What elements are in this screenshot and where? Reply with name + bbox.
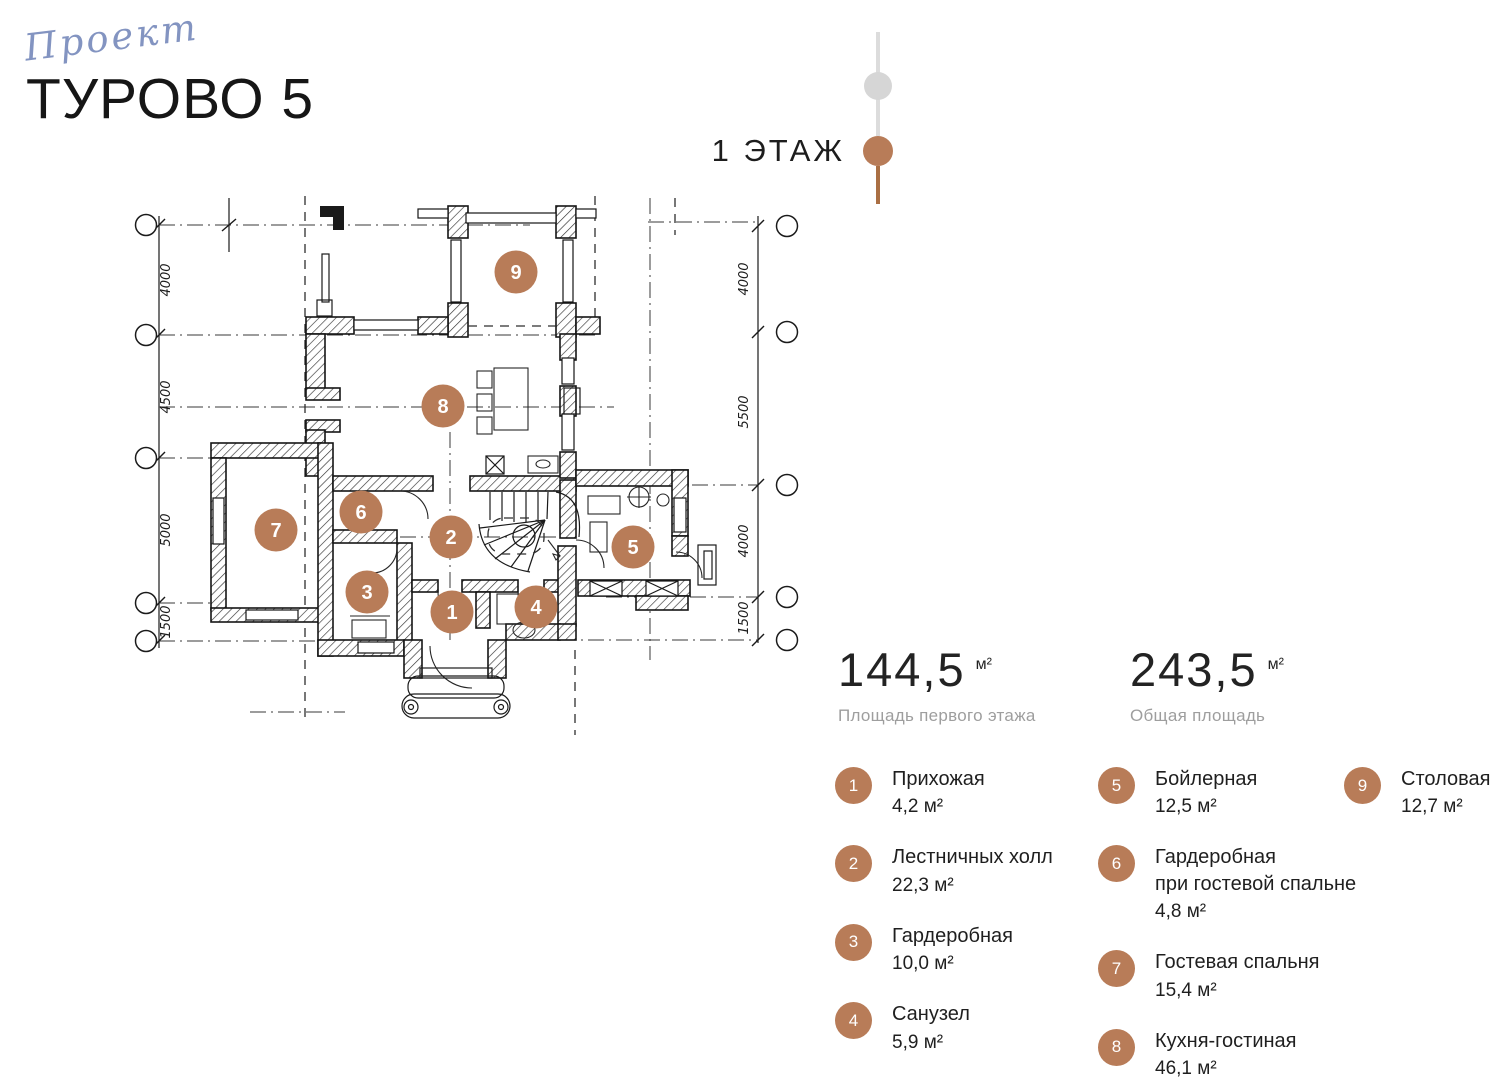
room-number-badge: 9 [1344, 767, 1381, 804]
room-area: 12,5 м² [1155, 796, 1257, 818]
room-name-line: Гардеробная [1155, 844, 1356, 870]
legend-item-8: 8Кухня-гостиная46,1 м² [1098, 1028, 1356, 1080]
first-floor-area-label: Площадь первого этажа [838, 706, 1036, 726]
plan-marker-number: 4 [530, 597, 542, 619]
room-area: 10,0 м² [892, 953, 1013, 975]
floor-plan: 40004500500015004000550040001500 [120, 185, 840, 745]
plan-marker-number: 5 [627, 537, 638, 559]
plan-marker-number: 6 [355, 502, 366, 524]
room-area: 5,9 м² [892, 1032, 970, 1054]
room-number-badge: 2 [835, 845, 872, 882]
legend-item-3: 3Гардеробная10,0 м² [835, 923, 1053, 975]
room-name: Гардеробнаяпри гостевой спальне [1155, 844, 1356, 897]
dimension-label: 1500 [159, 605, 174, 638]
room-area: 22,3 м² [892, 875, 1053, 897]
timeline-dot-floor1-active[interactable] [863, 136, 893, 166]
room-number-badge: 3 [835, 924, 872, 961]
room-name-line: Лестничных холл [892, 844, 1053, 870]
legend-item-5: 5Бойлерная12,5 м² [1098, 766, 1356, 818]
room-name-line: Санузел [892, 1001, 970, 1027]
dimension-label: 4000 [737, 524, 752, 557]
room-name-line: Гостевая спальня [1155, 949, 1320, 975]
total-area-label: Общая площадь [1130, 706, 1284, 726]
legend-item-9: 9Столовая12,7 м² [1344, 766, 1490, 818]
legend-column-3: 9Столовая12,7 м² [1344, 766, 1490, 818]
dimension-grid: 40004500500015004000550040001500 [136, 196, 798, 735]
room-name: Гардеробная [892, 923, 1013, 949]
floor-label: 1 ЭТАЖ [560, 133, 845, 169]
dimension-label: 4500 [159, 380, 174, 413]
legend-column-2: 5Бойлерная12,5 м²6Гардеробнаяпри гостево… [1098, 766, 1356, 1080]
legend-item-2: 2Лестничных холл22,3 м² [835, 844, 1053, 896]
plan-marker-number: 8 [437, 396, 448, 418]
room-area: 15,4 м² [1155, 980, 1320, 1002]
room-number-badge: 4 [835, 1002, 872, 1039]
room-area: 46,1 м² [1155, 1058, 1297, 1080]
room-number-badge: 1 [835, 767, 872, 804]
room-name-line: Гардеробная [892, 923, 1013, 949]
dimension-label: 4000 [737, 262, 752, 295]
room-name: Бойлерная [1155, 766, 1257, 792]
room-number-badge: 5 [1098, 767, 1135, 804]
legend-column-1: 1Прихожая4,2 м²2Лестничных холл22,3 м²3Г… [835, 766, 1053, 1054]
page-title: ТУРОВО 5 [26, 66, 314, 132]
first-floor-area-stat: 144,5м² Площадь первого этажа [838, 642, 1036, 726]
timeline-dot-floor2[interactable] [864, 72, 892, 100]
room-area: 4,2 м² [892, 796, 985, 818]
floor-plan-drawing: 40004500500015004000550040001500 [120, 185, 840, 745]
room-name-line: Кухня-гостиная [1155, 1028, 1297, 1054]
room-number-badge: 6 [1098, 845, 1135, 882]
first-floor-area-value: 144,5 [838, 643, 966, 696]
plan-marker-number: 1 [446, 602, 457, 624]
room-name: Санузел [892, 1001, 970, 1027]
legend-item-7: 7Гостевая спальня15,4 м² [1098, 949, 1356, 1001]
room-name-line: Столовая [1401, 766, 1490, 792]
room-name: Столовая [1401, 766, 1490, 792]
room-name: Гостевая спальня [1155, 949, 1320, 975]
legend-item-6: 6Гардеробнаяпри гостевой спальне4,8 м² [1098, 844, 1356, 923]
dimension-label: 5500 [737, 395, 752, 428]
room-name-line: Прихожая [892, 766, 985, 792]
room-name-line: при гостевой спальне [1155, 871, 1356, 897]
room-name: Лестничных холл [892, 844, 1053, 870]
plan-marker-number: 7 [270, 520, 281, 542]
chimney-mark [320, 206, 344, 230]
room-name: Кухня-гостиная [1155, 1028, 1297, 1054]
room-area: 4,8 м² [1155, 901, 1356, 923]
room-name-line: Бойлерная [1155, 766, 1257, 792]
plan-marker-number: 2 [445, 527, 456, 549]
total-area-value: 243,5 [1130, 643, 1258, 696]
room-area: 12,7 м² [1401, 796, 1490, 818]
legend-item-4: 4Санузел5,9 м² [835, 1001, 1053, 1053]
entry-porch [402, 668, 510, 718]
studio-logo-script: Проект [22, 5, 201, 69]
legend-item-1: 1Прихожая4,2 м² [835, 766, 1053, 818]
room-name: Прихожая [892, 766, 985, 792]
room-number-badge: 7 [1098, 950, 1135, 987]
area-unit: м² [976, 656, 992, 673]
dimension-label: 1500 [737, 601, 752, 634]
room-number-badge: 8 [1098, 1029, 1135, 1066]
dimension-label: 5000 [159, 513, 174, 546]
timeline-line-lower [876, 166, 880, 204]
total-area-stat: 243,5м² Общая площадь [1130, 642, 1284, 726]
plan-marker-number: 9 [510, 262, 521, 284]
dimension-label: 4000 [159, 263, 174, 296]
area-unit: м² [1268, 656, 1284, 673]
plan-marker-number: 3 [361, 582, 372, 604]
